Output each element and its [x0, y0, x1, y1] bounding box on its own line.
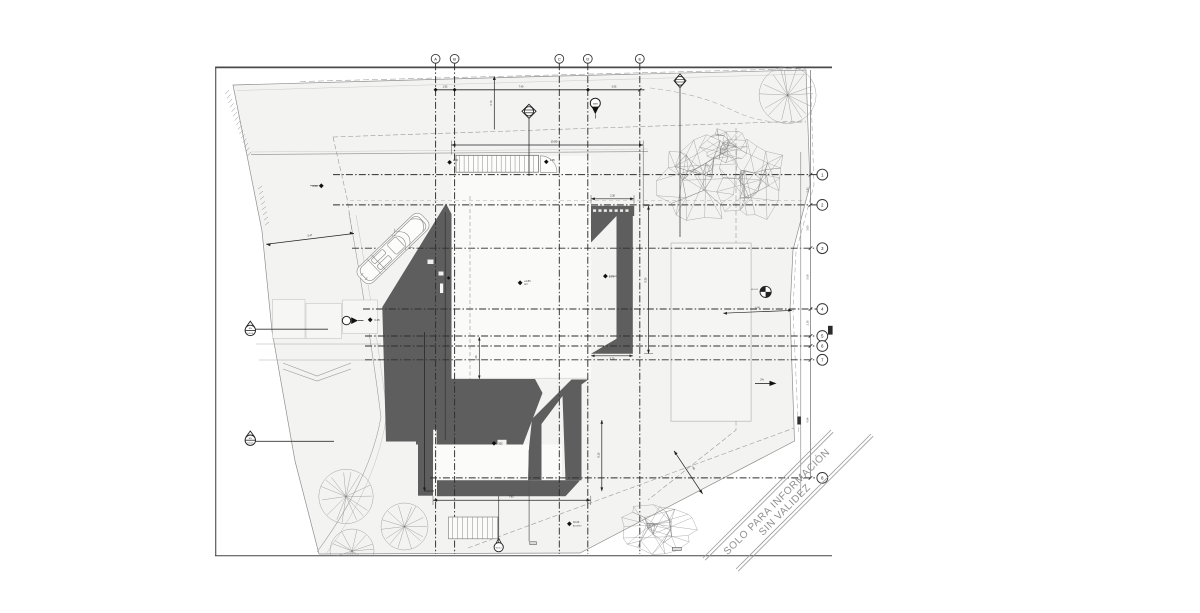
svg-text:E: E [638, 56, 641, 61]
svg-text:3.60: 3.60 [806, 225, 810, 231]
svg-text:5.00: 5.00 [755, 306, 760, 309]
svg-text:B: B [453, 56, 456, 61]
svg-text:100.00: 100.00 [247, 443, 253, 445]
svg-text:302: 302 [498, 442, 503, 446]
svg-text:100.00: 100.00 [247, 333, 253, 335]
svg-text:3.70: 3.70 [610, 357, 615, 360]
svg-text:BN: BN [249, 438, 252, 440]
svg-text:1.35: 1.35 [550, 158, 556, 162]
svg-text:ACCESO: ACCESO [573, 524, 582, 527]
svg-text:A: A [434, 56, 437, 61]
svg-text:±0.00: ±0.00 [573, 521, 580, 524]
svg-text:2.30: 2.30 [453, 158, 459, 162]
svg-text:7.40: 7.40 [519, 85, 524, 88]
svg-text:MAM: MAM [593, 103, 598, 106]
svg-text:+2.80: +2.80 [524, 279, 531, 283]
svg-text:5.08: 5.08 [806, 274, 810, 280]
svg-text:9.84: 9.84 [806, 417, 810, 423]
svg-text:NV+0.15: NV+0.15 [751, 289, 758, 291]
svg-text:C: C [558, 56, 561, 61]
svg-text:D: D [586, 56, 589, 61]
svg-text:BN: BN [249, 328, 252, 330]
svg-text:3.06: 3.06 [612, 85, 617, 88]
svg-text:NPT: NPT [524, 284, 529, 286]
svg-text:6.10: 6.10 [598, 452, 601, 457]
svg-text:1.92: 1.92 [443, 85, 448, 88]
svg-text:5.74: 5.74 [490, 100, 493, 105]
svg-text:9.30: 9.30 [644, 277, 647, 282]
svg-text:2.43: 2.43 [806, 187, 810, 193]
svg-text:2.26: 2.26 [806, 320, 810, 326]
svg-text:1.40: 1.40 [475, 355, 478, 360]
svg-text:NV±0.0: NV±0.0 [496, 548, 502, 550]
svg-text:2.30: 2.30 [610, 194, 615, 197]
svg-text:7.95: 7.95 [508, 495, 514, 499]
svg-text:10.80: 10.80 [551, 139, 558, 143]
svg-text:0.45: 0.45 [375, 318, 381, 322]
